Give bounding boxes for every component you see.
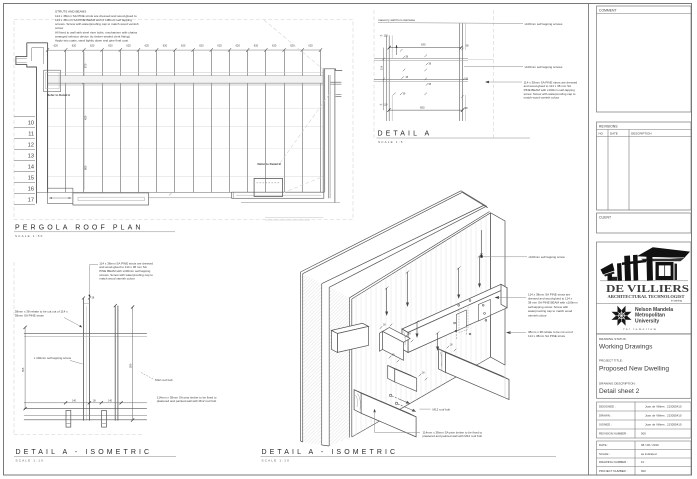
svg-text:Juan de Villiers . 213055410: Juan de Villiers . 213055410 <box>645 423 682 427</box>
svg-text:screws. Screw with waterproofi: screws. Screw with waterproofing cap to … <box>55 22 139 26</box>
svg-text:masonry wall from staircase: masonry wall from staircase <box>378 18 416 22</box>
svg-text:Detail sheet 2: Detail sheet 2 <box>599 388 640 395</box>
svg-text:plastered and painted wall wit: plastered and painted wall with M12 roof… <box>157 399 217 403</box>
svg-text:match wood varnish colour: match wood varnish colour <box>99 277 135 281</box>
svg-text:620: 620 <box>126 43 131 47</box>
svg-text:002: 002 <box>641 469 646 473</box>
svg-text:Juan de Villiers . 213055410: Juan de Villiers . 213055410 <box>645 405 682 409</box>
svg-text:Proposed New Dwelling: Proposed New Dwelling <box>599 366 669 373</box>
svg-text:PROJECT NUMBER :: PROJECT NUMBER : <box>599 469 628 473</box>
svg-text:DETAIL A - ISOMETRIC: DETAIL A - ISOMETRIC <box>262 449 399 456</box>
svg-text:as indicated: as indicated <box>641 452 657 456</box>
svg-text:DETAIL A - ISOMETRIC: DETAIL A - ISOMETRIC <box>16 449 153 456</box>
svg-text:860: 860 <box>84 165 88 170</box>
svg-text:varnish colour: varnish colour <box>528 313 547 317</box>
svg-text:555: 555 <box>21 367 25 372</box>
svg-text:450: 450 <box>84 115 88 120</box>
svg-text:11: 11 <box>28 132 34 138</box>
svg-text:plastered and painted wall wit: plastered and painted wall with M12 roof… <box>423 434 483 438</box>
svg-text:38mm SA PINE struts: 38mm SA PINE struts <box>15 313 45 317</box>
svg-text:17: 17 <box>28 198 34 204</box>
svg-text:620: 620 <box>217 43 222 47</box>
svg-text:NO: NO <box>599 132 604 136</box>
svg-text:DRAWING STATUS:: DRAWING STATUS: <box>599 337 627 341</box>
svg-text:08 / 08 / 2016: 08 / 08 / 2016 <box>641 443 659 447</box>
svg-text:REVISION NUMBER :: REVISION NUMBER : <box>599 432 628 436</box>
svg-text:114 x 38mm SA PINE struts: 114 x 38mm SA PINE struts <box>528 334 565 338</box>
svg-text:Refer to Detail B: Refer to Detail B <box>258 162 282 166</box>
svg-text:PERGOLA ROOF PLAN: PERGOLA ROOF PLAN <box>15 225 144 232</box>
svg-text:620: 620 <box>163 43 168 47</box>
svg-text:REVISIONS: REVISIONS <box>599 125 618 129</box>
svg-text:38: 38 <box>466 44 469 48</box>
svg-text:590: 590 <box>128 363 132 368</box>
svg-text:Apply two coats, sand lightly: Apply two coats, sand lightly down and g… <box>55 39 128 43</box>
svg-text:15: 15 <box>28 176 34 182</box>
svg-text:13: 13 <box>28 154 34 160</box>
svg-text:Working Drawings: Working Drawings <box>599 344 653 351</box>
svg-text:SIGNED :: SIGNED : <box>599 423 612 427</box>
svg-text:DESCRIPTION: DESCRIPTION <box>631 132 652 136</box>
svg-text:M12 roof bolt: M12 roof bolt <box>155 378 173 382</box>
svg-text:114: 114 <box>380 65 384 70</box>
svg-text:x100mm self tapping screw: x100mm self tapping screw <box>529 255 566 259</box>
svg-text:SCALE 1:50: SCALE 1:50 <box>15 234 44 238</box>
svg-text:DESIGNED :: DESIGNED : <box>599 405 616 409</box>
svg-text:620: 620 <box>254 43 259 47</box>
svg-text:for tomorrow: for tomorrow <box>624 327 658 331</box>
svg-text:SCALE 1:10: SCALE 1:10 <box>262 458 291 462</box>
svg-text:870: 870 <box>84 63 88 68</box>
svg-text:650: 650 <box>420 105 425 109</box>
svg-text:in training: in training <box>671 300 682 303</box>
svg-text:10: 10 <box>28 121 34 127</box>
svg-text:620: 620 <box>199 43 204 47</box>
svg-text:x100mm self tapping screws: x100mm self tapping screws <box>525 65 563 69</box>
svg-text:Juan de Villiers . 213055410: Juan de Villiers . 213055410 <box>645 414 682 418</box>
svg-text:620: 620 <box>308 43 313 47</box>
svg-text:SCALE 1:10: SCALE 1:10 <box>16 458 45 462</box>
svg-text:000: 000 <box>641 432 646 436</box>
svg-text:620: 620 <box>181 43 186 47</box>
svg-text:140: 140 <box>72 399 77 402</box>
svg-text:COMMENT: COMMENT <box>599 8 617 12</box>
svg-text:16: 16 <box>28 187 34 193</box>
svg-text:620: 620 <box>272 43 277 47</box>
svg-text:620: 620 <box>236 43 241 47</box>
svg-text:DATE: DATE <box>610 132 618 136</box>
svg-text:x 100mm self tapping screw: x 100mm self tapping screw <box>34 356 72 360</box>
svg-text:DATE :: DATE : <box>599 443 608 447</box>
svg-text:620: 620 <box>54 43 59 47</box>
svg-text:DRAWING DESCRIPTION:: DRAWING DESCRIPTION: <box>599 381 636 385</box>
svg-text:M12 roof bolt: M12 roof bolt <box>433 408 451 412</box>
svg-text:DRAWN :: DRAWN : <box>599 414 612 418</box>
svg-text:620: 620 <box>90 43 95 47</box>
svg-text:DRAWING NUMBER :: DRAWING NUMBER : <box>599 460 628 464</box>
svg-text:DETAIL A: DETAIL A <box>378 131 433 138</box>
svg-text:630: 630 <box>421 43 426 47</box>
svg-text:620: 620 <box>108 43 113 47</box>
svg-text:CLIENT: CLIENT <box>599 216 611 220</box>
svg-text:620: 620 <box>145 43 150 47</box>
svg-text:+/- 110: +/- 110 <box>380 33 389 37</box>
svg-text:Refer to Detail A: Refer to Detail A <box>47 93 71 97</box>
svg-text:14: 14 <box>28 165 34 171</box>
svg-text:620: 620 <box>72 43 77 47</box>
svg-text:ARCHITECTURAL TECHNOLOGIST: ARCHITECTURAL TECHNOLOGIST <box>608 294 685 299</box>
svg-text:+/- 110: +/- 110 <box>379 103 388 107</box>
svg-text:SCALE 1:5: SCALE 1:5 <box>378 140 404 144</box>
svg-text:140: 140 <box>108 399 113 402</box>
svg-text:12: 12 <box>28 143 34 149</box>
svg-text:University: University <box>635 318 659 324</box>
svg-text:10: 10 <box>641 460 645 464</box>
svg-text:SCALE :: SCALE : <box>599 452 610 456</box>
svg-text:match wood varnish colour: match wood varnish colour <box>524 96 560 100</box>
svg-text:PROJECT TITLE:: PROJECT TITLE: <box>599 359 623 363</box>
svg-text:x100mm self tapping screws: x100mm self tapping screws <box>525 22 563 26</box>
